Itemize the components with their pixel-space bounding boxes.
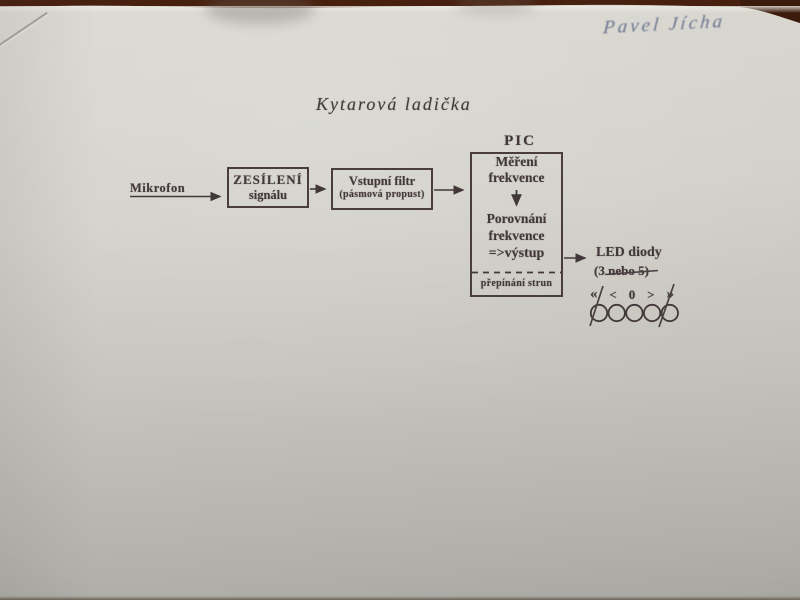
zero-center-symbol: 0 xyxy=(629,287,636,303)
diagram-title: Kytarová ladička xyxy=(316,94,472,115)
led-direction-symbols: « < 0 > » xyxy=(590,286,674,303)
led-count-label: (3 nebo 5) xyxy=(594,263,649,279)
input-filter-box: Vstupní filtr (pásmová propust) xyxy=(331,168,433,210)
led-circles-row xyxy=(591,305,678,321)
led-count-prefix: (3 xyxy=(594,263,608,278)
pic-compare-line1: Porovnání xyxy=(470,211,563,227)
pic-measure-line1: Měření xyxy=(470,154,563,170)
pic-chip-label: PIC xyxy=(470,133,570,150)
pic-measure-line2: frekvence xyxy=(470,170,563,186)
double-left-chevron-symbol: « xyxy=(590,286,598,303)
right-chevron-symbol: > xyxy=(647,287,654,303)
input-filter-box-line2: (pásmová propust) xyxy=(333,189,431,200)
pic-compare-line2: frekvence xyxy=(470,228,563,244)
led-output-label: LED diody xyxy=(596,245,662,261)
led-circle xyxy=(644,305,660,321)
led-circle xyxy=(609,305,625,321)
left-chevron-symbol: < xyxy=(609,287,616,303)
pic-string-switch-label: přepínání strun xyxy=(470,278,563,289)
led-circle xyxy=(591,305,607,321)
amplifier-box-line2: signálu xyxy=(229,188,307,203)
block-diagram: Kytarová ladička Mikrofon ZESÍLENÍ signá… xyxy=(0,0,800,600)
photo-of-paper-on-table: Pavel Jícha Kytarová ladička Mikrofon ZE… xyxy=(0,0,800,600)
microphone-label: Mikrofon xyxy=(130,181,185,196)
double-right-chevron-symbol: » xyxy=(666,286,674,303)
input-filter-box-line1: Vstupní filtr xyxy=(333,174,431,189)
diagram-connectors xyxy=(0,0,800,600)
led-circle xyxy=(662,305,678,321)
led-count-struck-text: nebo 5) xyxy=(608,263,649,278)
pic-output-line: =>výstup xyxy=(470,246,563,262)
amplifier-box: ZESÍLENÍ signálu xyxy=(227,167,309,208)
amplifier-box-line1: ZESÍLENÍ xyxy=(229,172,307,188)
led-circle xyxy=(626,305,642,321)
